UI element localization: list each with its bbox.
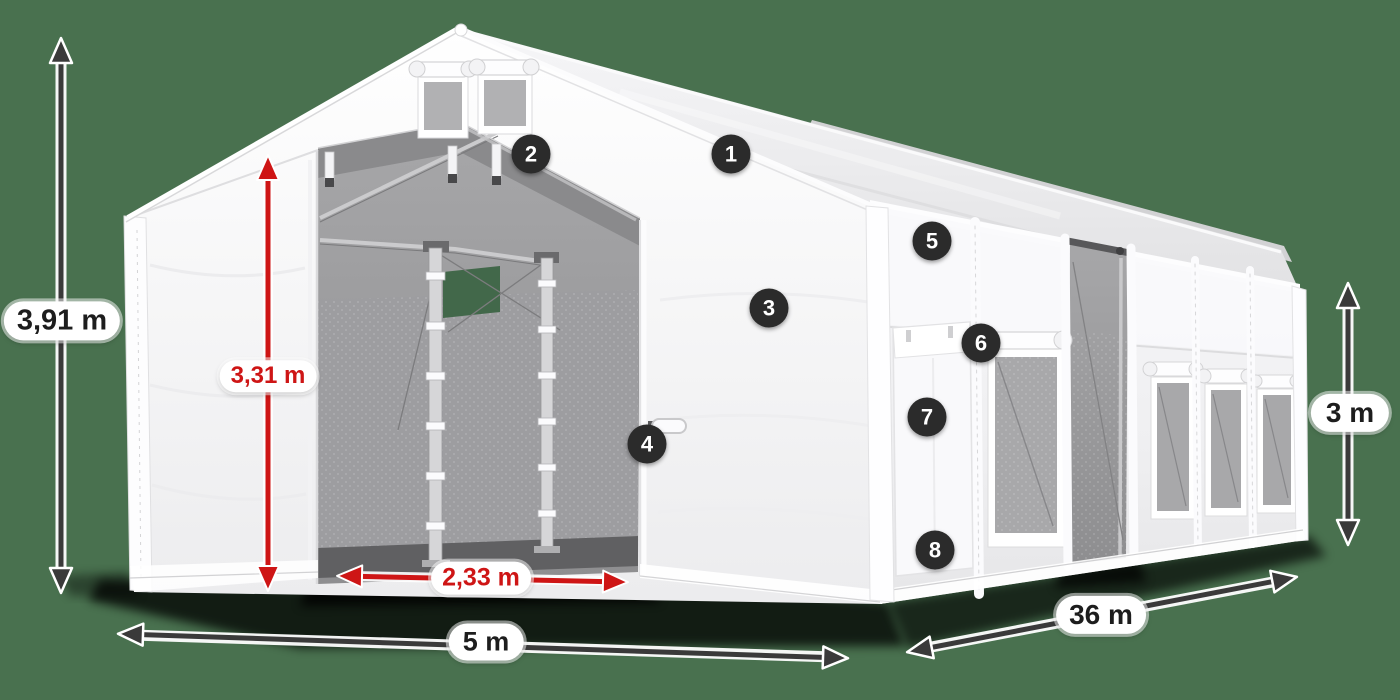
- dimension-label-front-width: 5 m: [449, 623, 524, 660]
- dimension-label-total-height: 3,91 m: [4, 301, 120, 340]
- side-window-3: [1197, 369, 1255, 516]
- marker-3[interactable]: 3: [750, 289, 789, 328]
- tent-dimension-diagram: 3,91 m 3,31 m 2,33 m 5 m 36 m 3 m 1 2 3 …: [0, 0, 1400, 700]
- gable-vent-right: [469, 59, 539, 134]
- gable-vent-left: [409, 61, 477, 138]
- dimension-label-inner-door-height: 3,31 m: [220, 360, 317, 392]
- marker-2[interactable]: 2: [512, 135, 551, 174]
- dimension-label-length: 36 m: [1056, 596, 1146, 634]
- dimension-label-side-height: 3 m: [1311, 394, 1389, 432]
- marker-4[interactable]: 4: [628, 425, 667, 464]
- dimension-label-door-width: 2,33 m: [431, 562, 531, 595]
- marker-1[interactable]: 1: [712, 135, 751, 174]
- marker-6[interactable]: 6: [962, 324, 1001, 363]
- tent-illustration: [0, 0, 1400, 700]
- side-window-1: [978, 331, 1072, 547]
- side-door-open: [1068, 240, 1130, 564]
- marker-8[interactable]: 8: [916, 531, 955, 570]
- marker-5[interactable]: 5: [913, 222, 952, 261]
- marker-7[interactable]: 7: [908, 398, 947, 437]
